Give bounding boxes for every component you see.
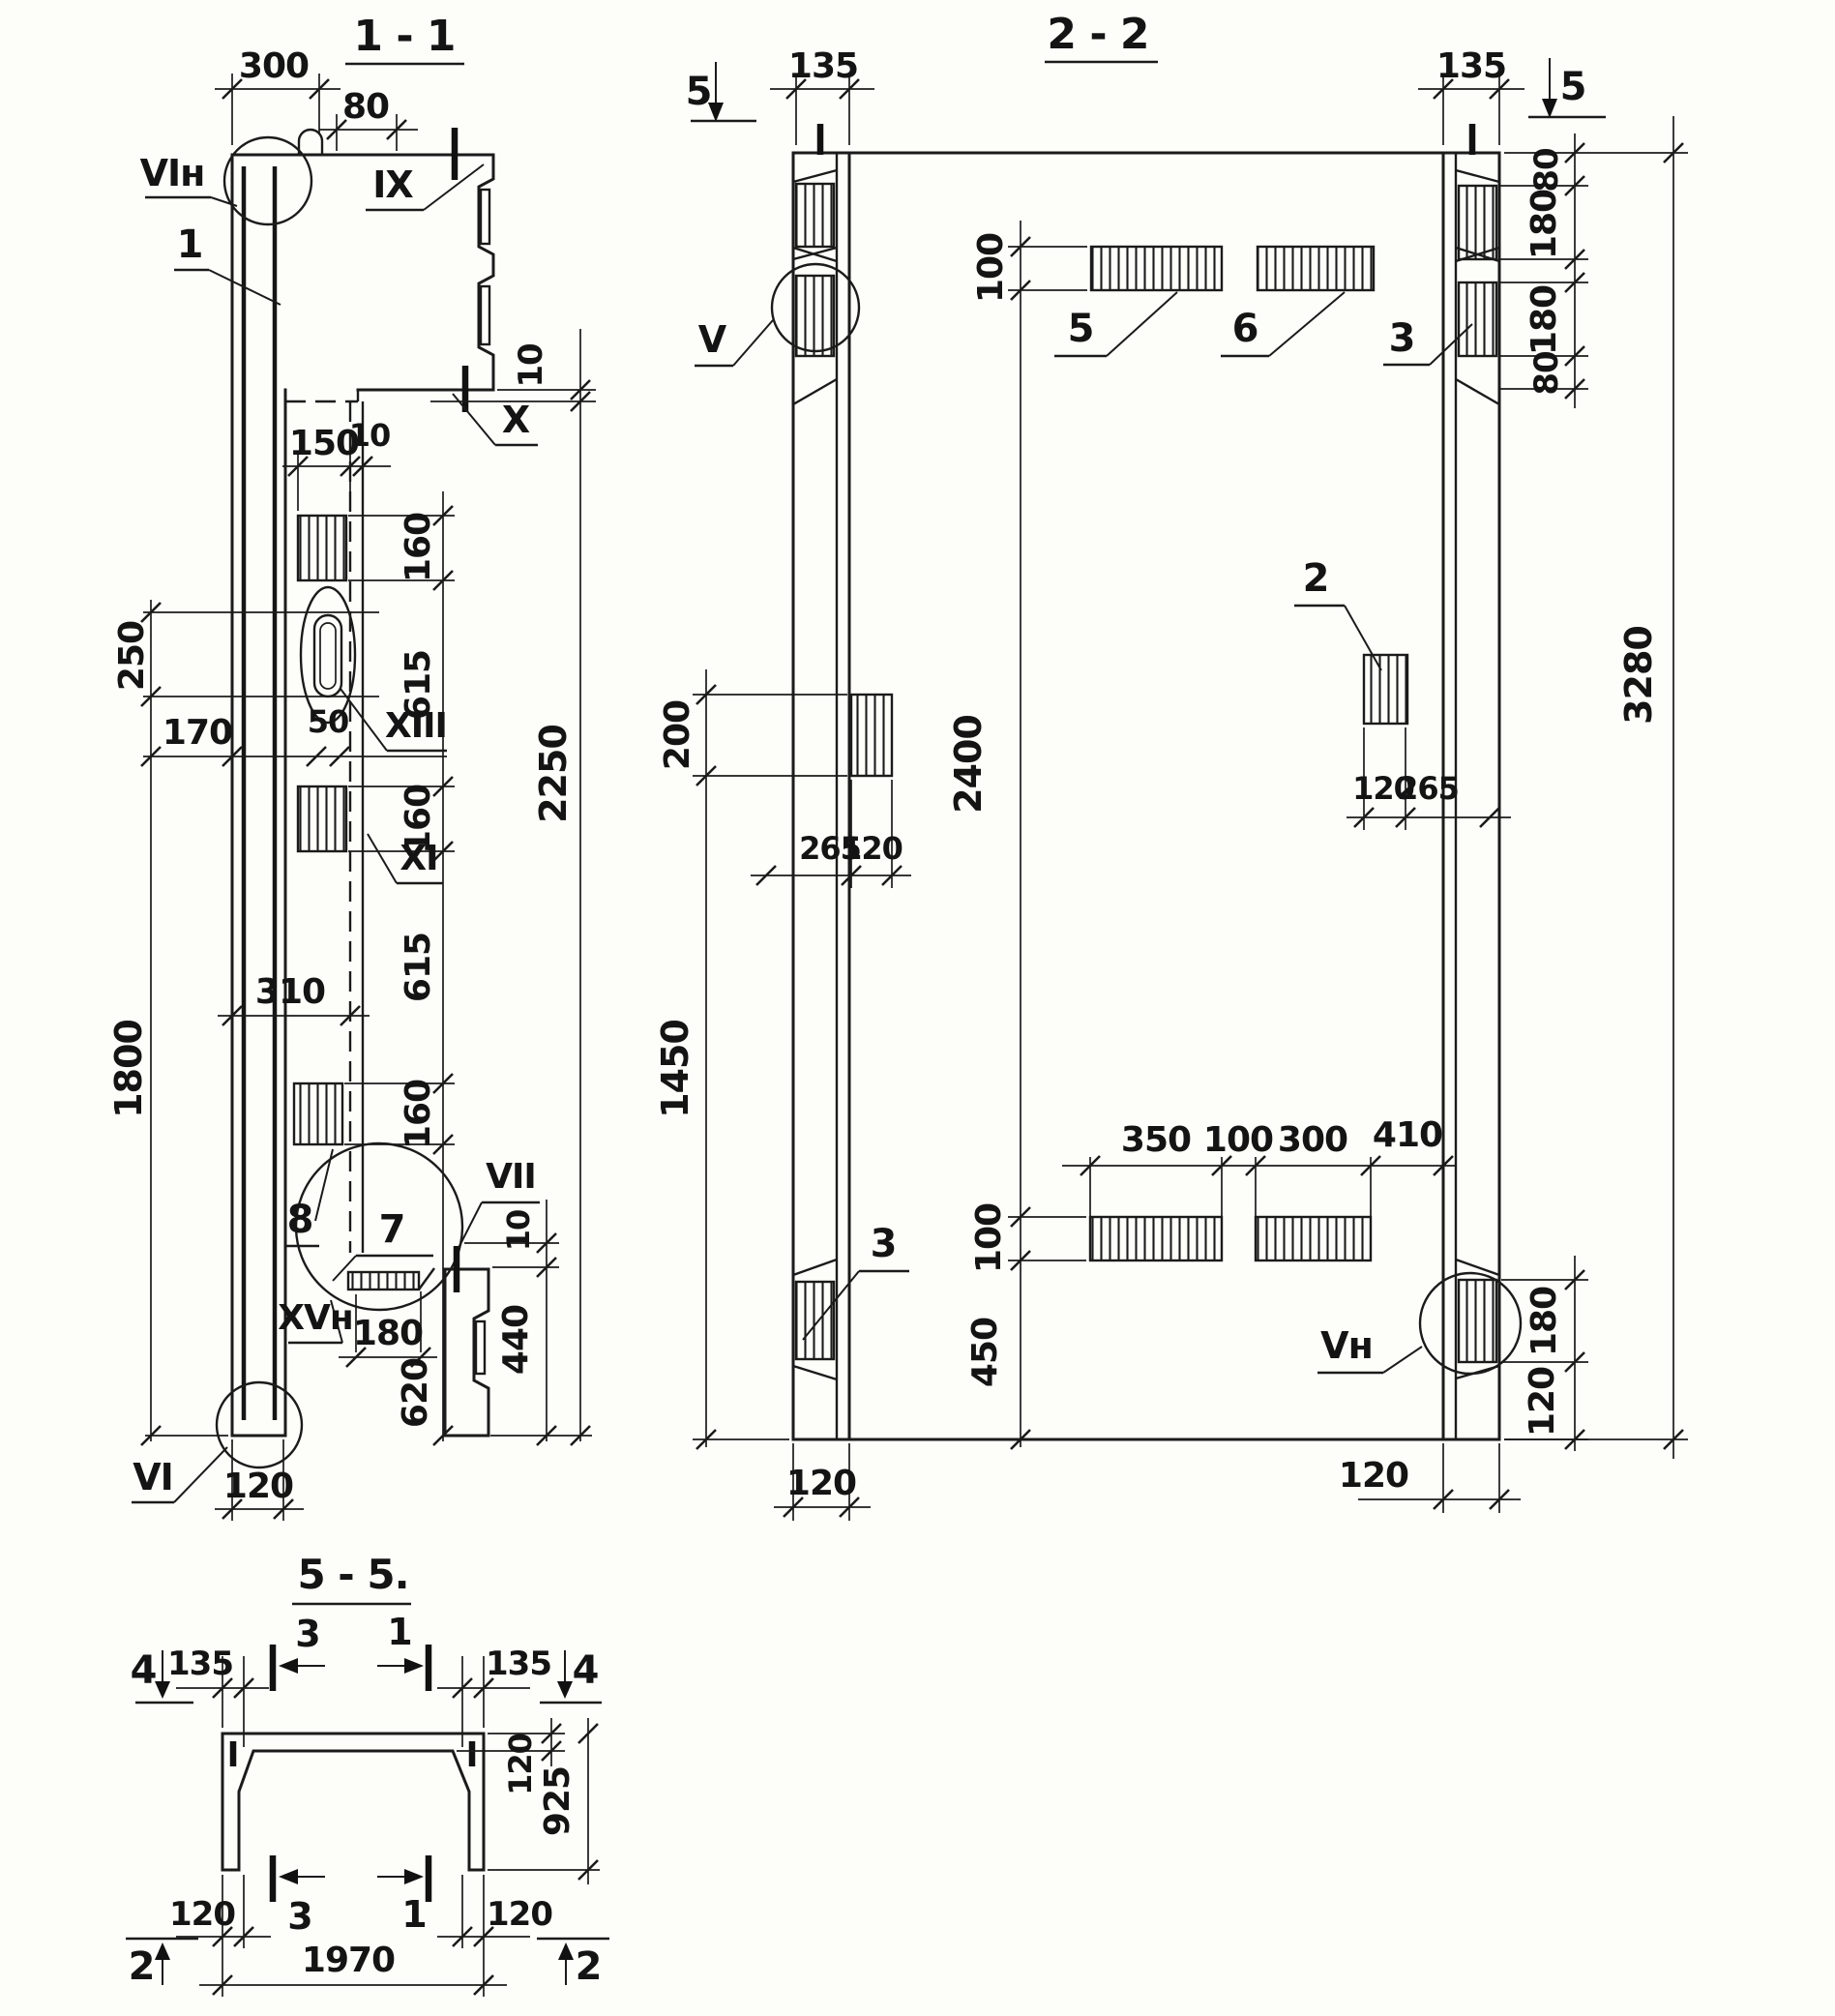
dim-200: 200 (658, 700, 697, 770)
dim-120-55top: 120 (502, 1734, 539, 1795)
left-column-details (772, 170, 859, 1379)
dim-300: 300 (239, 46, 309, 86)
marker-5-left: 5 (686, 70, 712, 114)
label-part-2: 2 (1303, 556, 1329, 601)
dim-135-55r: 135 (486, 1645, 551, 1683)
dim-180-tr2: 180 (1524, 285, 1564, 355)
label-part-8: 8 (287, 1198, 313, 1242)
marker-1-top: 1 (387, 1611, 411, 1653)
dim-120-55br: 120 (487, 1895, 552, 1934)
marker-3-bottom: 3 (287, 1895, 311, 1938)
dim-120-col22r: 120 (1339, 1456, 1408, 1496)
dim-180-tr1: 180 (1524, 190, 1564, 259)
dim-410: 410 (1373, 1115, 1442, 1155)
text-annotations: 3008010150101606151606151606202250250180… (107, 46, 1660, 1989)
dim-2250: 2250 (532, 725, 575, 823)
weld-plate-7 (348, 1268, 434, 1290)
dim-160-c: 160 (399, 1080, 438, 1149)
embed-plate-2 (1364, 655, 1407, 724)
dim-160-a: 160 (399, 513, 438, 582)
label-ix: IX (372, 163, 413, 206)
embed-plate-8 (294, 1083, 342, 1144)
dim-620: 620 (396, 1358, 435, 1428)
bottom-bracket-1-1 (445, 1269, 488, 1436)
dim-80-tr1: 80 (1527, 148, 1566, 193)
embed-plate-bottom-a (1090, 1217, 1222, 1260)
dim-80-tr2: 80 (1527, 351, 1566, 396)
dim-10-rib: 10 (349, 417, 391, 454)
dim-135-left: 135 (788, 46, 858, 86)
dim-180-plate: 180 (353, 1314, 423, 1353)
label-part-3-bottom: 3 (871, 1222, 897, 1266)
cut-markers-5-5 (126, 1645, 609, 1985)
dim-10-top-right: 10 (512, 343, 550, 388)
dim-120-col22l: 120 (786, 1464, 856, 1503)
section-2-2-title: 2 - 2 (1047, 10, 1148, 59)
marker-2-left: 2 (129, 1944, 155, 1989)
marker-1-bottom: 1 (401, 1893, 426, 1936)
panel-sections-drawing: 1 - 1 (0, 0, 1835, 2016)
label-vii: VII (486, 1157, 536, 1197)
dim-2400: 2400 (947, 715, 990, 814)
detail-circle-vi (217, 1382, 302, 1468)
label-part-6: 6 (1232, 307, 1258, 351)
dim-300-row: 300 (1278, 1120, 1347, 1160)
dimensions-1-1 (141, 74, 596, 1521)
dim-1800: 1800 (107, 1020, 150, 1118)
dim-120-col11: 120 (223, 1467, 293, 1506)
dim-1970: 1970 (302, 1941, 395, 1980)
slot-xiii (314, 615, 341, 697)
embed-plate-bottom-b (1256, 1217, 1371, 1260)
notch-insert-2 (481, 286, 489, 344)
dim-50: 50 (308, 703, 349, 740)
dim-350: 350 (1121, 1120, 1191, 1160)
marker-5-right: 5 (1560, 65, 1586, 109)
label-part-1: 1 (177, 222, 203, 267)
dim-1450: 1450 (654, 1020, 696, 1118)
dim-615-b: 615 (399, 933, 438, 1002)
channel-outline-5-5 (222, 1734, 484, 1870)
label-xiii: XIII (385, 706, 447, 746)
label-vi-n: VIн (140, 152, 205, 194)
label-part-5: 5 (1068, 307, 1094, 351)
marker-4-right: 4 (573, 1648, 599, 1693)
dim-170: 170 (163, 713, 232, 753)
label-xi: XI (400, 839, 437, 878)
dim-180-rb: 180 (1524, 1287, 1564, 1356)
dim-10-bracket: 10 (500, 1210, 537, 1252)
embed-plate-6 (1258, 247, 1374, 290)
label-part-3-top: 3 (1389, 316, 1415, 361)
detail-oval-xiii (301, 587, 355, 723)
label-v-n: Vн (1320, 1324, 1373, 1367)
marker-2-right: 2 (576, 1944, 602, 1989)
marker-3-top: 3 (295, 1613, 319, 1655)
marker-4-left: 4 (131, 1648, 157, 1693)
embed-plate-mid (298, 786, 346, 851)
embed-plate-5 (1091, 247, 1222, 290)
section-5-5-title: 5 - 5. (297, 1551, 408, 1598)
dim-135-right: 135 (1436, 46, 1506, 86)
label-x: X (502, 399, 530, 441)
drawing-sheet: 1 - 1 (0, 0, 1835, 2016)
label-vi: VI (133, 1456, 173, 1498)
dim-120-left: 120 (841, 830, 903, 867)
embed-plate-mid-left (851, 695, 892, 776)
dim-135-55l: 135 (167, 1645, 233, 1683)
dim-925: 925 (538, 1766, 577, 1836)
dim-265-right: 265 (1397, 770, 1459, 807)
embed-plate-top (298, 516, 346, 580)
dim-100-bot: 100 (969, 1203, 1009, 1273)
dim-80: 80 (342, 87, 389, 127)
dim-120-rb: 120 (1523, 1367, 1562, 1437)
dim-310: 310 (255, 972, 325, 1012)
dim-440: 440 (496, 1305, 536, 1375)
section-1-1-title: 1 - 1 (353, 12, 455, 61)
label-xv-n: XVн (278, 1298, 353, 1338)
dim-100-top: 100 (971, 233, 1011, 303)
dim-450: 450 (965, 1318, 1005, 1387)
notch-insert-1 (481, 190, 489, 244)
dim-250: 250 (112, 621, 152, 691)
dim-120-55bl: 120 (169, 1895, 235, 1934)
dim-100-row: 100 (1203, 1120, 1273, 1160)
detail-circle-vi-n (224, 137, 311, 224)
label-part-7: 7 (379, 1207, 405, 1252)
dim-3280: 3280 (1617, 626, 1660, 725)
label-v: V (698, 318, 727, 361)
